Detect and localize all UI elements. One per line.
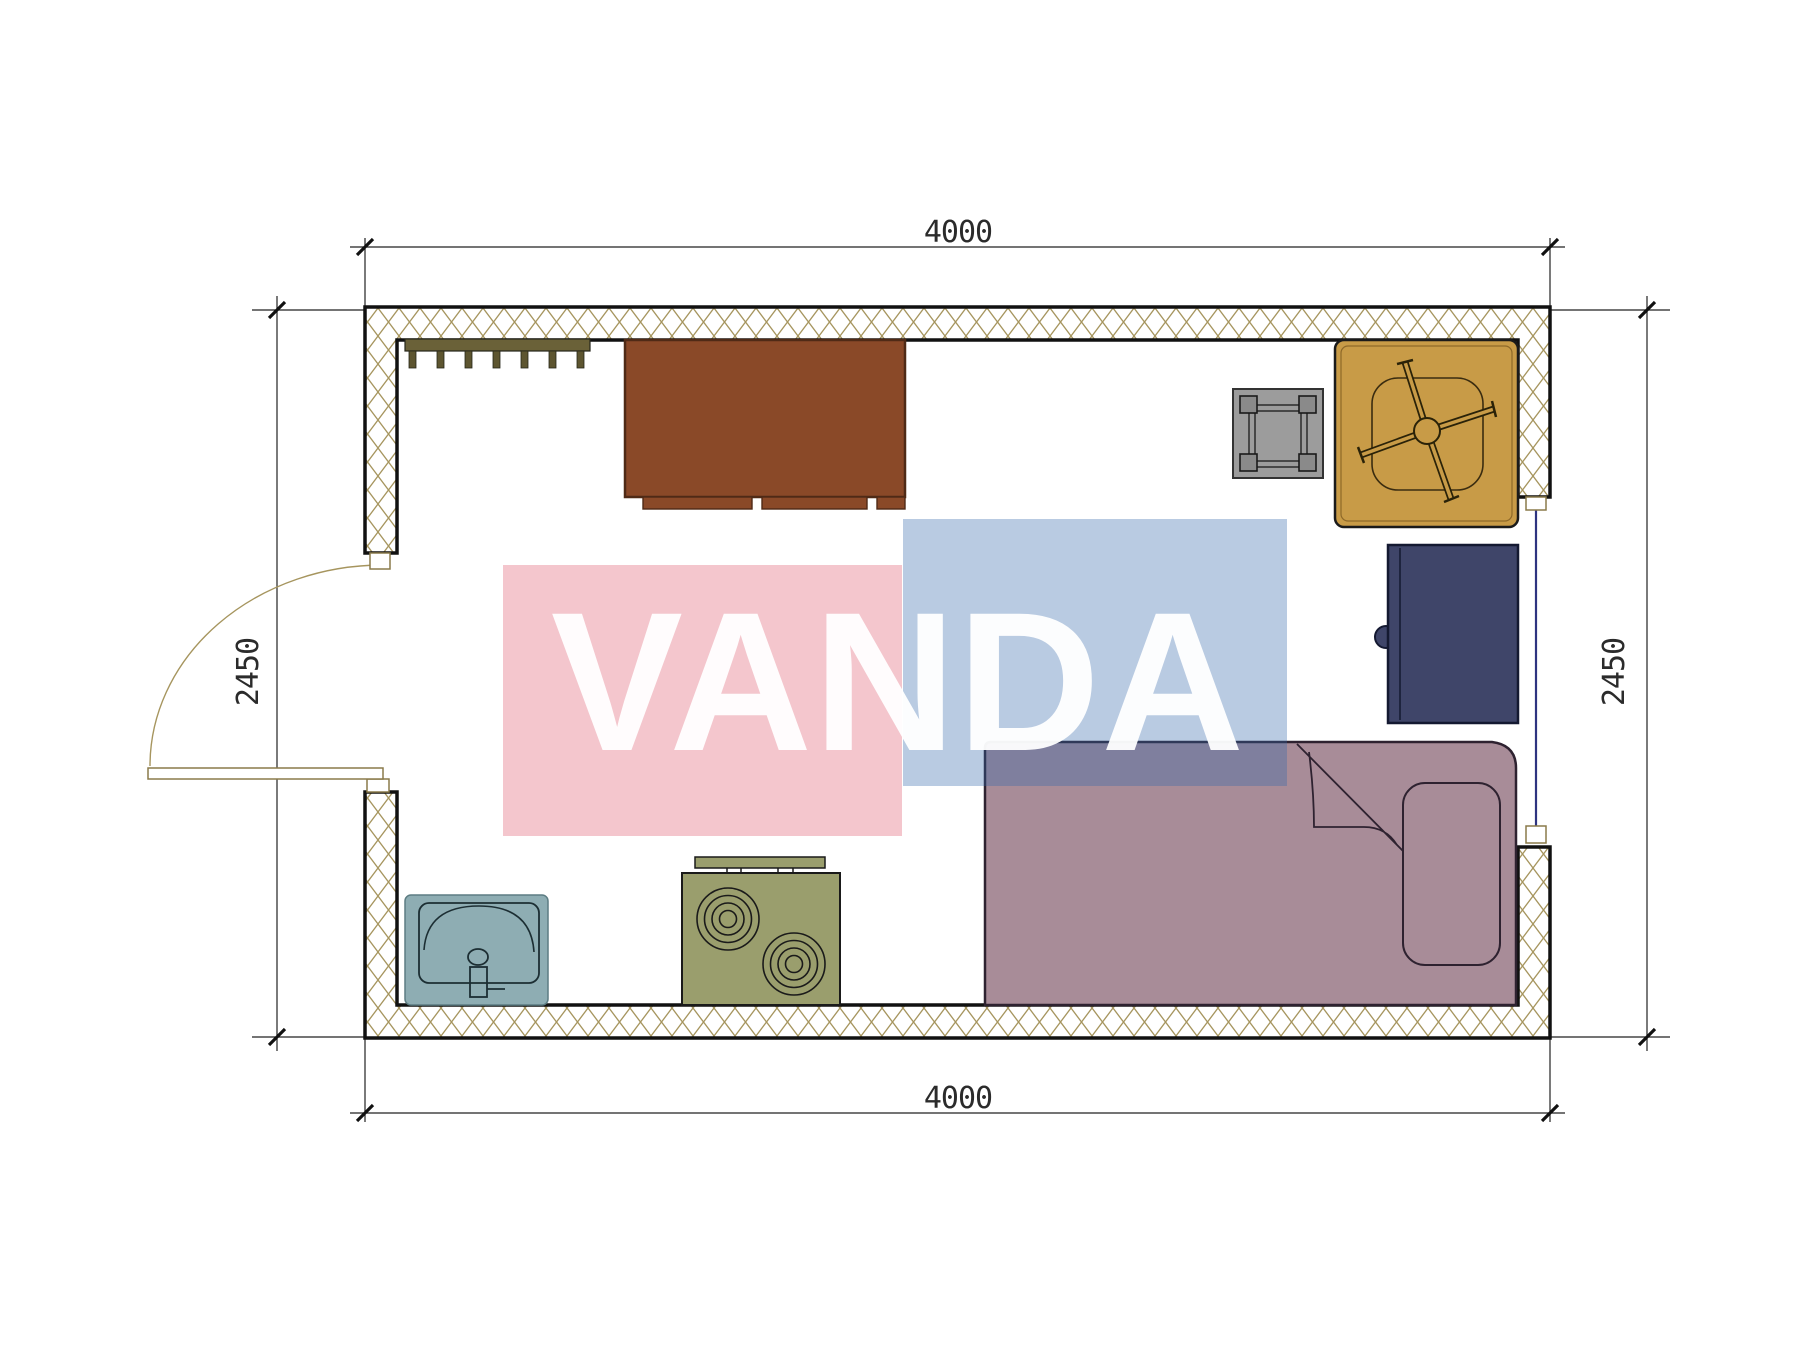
door-swing-arc [150, 565, 383, 766]
window-frame-bottom [1526, 826, 1546, 843]
dimension-label-right: 2450 [1597, 638, 1632, 706]
stool [1233, 389, 1323, 478]
coat-rack [405, 339, 590, 368]
watermark-text: VANDA [551, 571, 1245, 792]
door-frame-top [370, 553, 390, 569]
sink-cabinet [405, 895, 548, 1005]
door-frame-bottom [367, 779, 389, 792]
coat-rack-bar [405, 339, 590, 351]
floor-plan-svg: 4000 4000 2450 2450 [0, 0, 1800, 1350]
watermark: VANDA [503, 519, 1287, 836]
floor-plan-canvas: 4000 4000 2450 2450 [0, 0, 1800, 1350]
table-with-office-chair [1335, 340, 1518, 527]
window [1526, 497, 1546, 843]
dimension-label-bottom: 4000 [924, 1081, 992, 1116]
sink [405, 895, 548, 1005]
chair-base-hub [1414, 418, 1440, 444]
wardrobe-front-panel [643, 497, 752, 509]
refrigerator [1375, 545, 1518, 723]
pillow [1403, 783, 1500, 965]
door-leaf [148, 768, 383, 779]
wardrobe-front-panel [762, 497, 867, 509]
stove-control-bar [695, 857, 825, 868]
wardrobe-front-panel [877, 497, 905, 509]
dimension-label-top: 4000 [924, 215, 992, 250]
window-frame-top [1526, 497, 1546, 510]
refrigerator-body [1388, 545, 1518, 723]
dimension-label-left: 2450 [231, 638, 266, 706]
wardrobe-body [625, 340, 905, 497]
wardrobe [625, 340, 905, 509]
door [148, 553, 390, 792]
coat-rack-pegs [409, 351, 584, 368]
cooktop-stove [682, 857, 840, 1005]
